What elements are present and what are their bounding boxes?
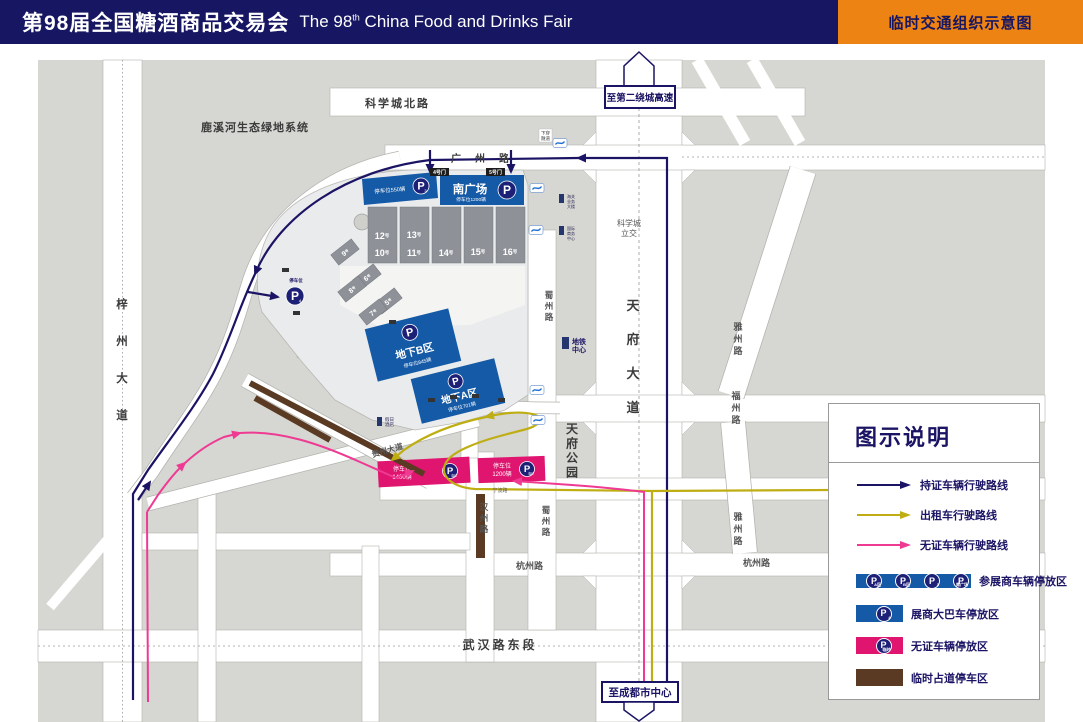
- gate-badge: [498, 398, 505, 402]
- label-yazhou-north: 雅州路: [732, 321, 743, 356]
- sign-north-label: 至第二绕城高速: [607, 92, 674, 104]
- page-title: 第98届全国糖酒商品交易会: [22, 7, 289, 37]
- svg-text:临时: 临时: [451, 474, 457, 478]
- temp2-cap2: 1200辆: [492, 470, 511, 478]
- label-interchange-2: 立交: [621, 228, 637, 238]
- intl-line3: 中心: [567, 235, 575, 241]
- legend-route-no-permit: 无证车辆行驶路线: [829, 537, 1039, 553]
- parking-south-plaza: 南广场 停车位1200辆 P: [440, 175, 524, 205]
- metro-icon: [531, 416, 545, 425]
- gate-5-label: 5号门: [489, 169, 502, 176]
- gate-badge: [472, 394, 479, 398]
- label-hanzhou: 汉州路: [479, 502, 489, 534]
- building-icon: [377, 417, 382, 426]
- legend-bus-parking: P4 展商大巴车停放区: [829, 605, 1039, 622]
- label-wuhan-east: 武汉路东段: [462, 637, 537, 652]
- label-hangzhou-east: 杭州路: [743, 557, 771, 568]
- metro-icon: [530, 184, 544, 193]
- building-icon: [559, 194, 564, 203]
- p-badge-a: PA区: [866, 573, 882, 589]
- road-sw-vertical2: [362, 546, 379, 722]
- customs-line3: 大楼: [567, 203, 575, 209]
- parking-temp-1200: 停车位 1200辆 P 临时: [478, 456, 546, 483]
- map-type-badge: 临时交通组织示意图: [838, 0, 1083, 44]
- gate-badge: [428, 398, 435, 402]
- exhibitor-parking-icon: PA区 PB区 P3 P南广场: [856, 574, 971, 588]
- legend-no-permit-parking: P临时 无证车辆停放区: [829, 637, 1039, 654]
- label-tianfu-park: 天府公园: [566, 422, 579, 480]
- legend-roadside-parking: 临时占道停车区: [829, 669, 1039, 686]
- south-plaza-label: 南广场: [453, 182, 488, 196]
- traffic-map-page: 第98届全国糖酒商品交易会 The 98th China Food and Dr…: [0, 0, 1083, 722]
- road-sw-horizontal: [142, 533, 470, 550]
- p-badge-b: PB区: [895, 573, 911, 589]
- p-badge-3: P3: [924, 573, 940, 589]
- label-fuzhou-east: 福州路: [730, 390, 741, 425]
- label-yazhou-south: 雅州路: [732, 511, 743, 546]
- hotel-line2: 酒店: [385, 421, 394, 428]
- page-title-en: The 98th China Food and Drinks Fair: [299, 12, 572, 32]
- roadside-parking-icon: [856, 669, 903, 686]
- p4-capacity: 停车位: [289, 277, 303, 284]
- legend-title: 图示说明: [829, 404, 1039, 462]
- building-icon: [559, 226, 564, 235]
- label-interchange-1: 科学城: [617, 218, 641, 228]
- temp2-cap1: 停车位: [493, 462, 511, 470]
- gate-4-label: 4号门: [433, 169, 446, 176]
- no-permit-parking-icon: P临时: [856, 637, 903, 654]
- p4-icon: P 4: [286, 287, 304, 305]
- metro-icon: [529, 226, 543, 235]
- gate-badge: [293, 311, 300, 315]
- label-guangzhou: 广州路: [451, 152, 523, 165]
- gate-badge: [450, 395, 457, 399]
- gate-badge: [282, 268, 289, 272]
- label-hangzhou-west: 杭州路: [516, 560, 544, 571]
- label-kexuecheng-north: 科学城北路: [365, 96, 430, 110]
- legend-panel: 图示说明 持证车辆行驶路线 出租车行驶路线 无证车辆行驶路线: [828, 403, 1040, 700]
- metro-center-line1: 地铁: [572, 337, 586, 346]
- tunnel-line2: 隧道: [541, 135, 550, 142]
- p-badge-temp: P临时: [876, 638, 892, 654]
- metro-icon: [530, 386, 544, 395]
- label-shuzhou-south: 蜀州路: [541, 505, 551, 537]
- svg-text:临时: 临时: [528, 472, 534, 476]
- road-sw-vertical1: [198, 492, 216, 722]
- label-shuzhou-north: 蜀州路: [544, 290, 554, 322]
- building-icon: [562, 337, 569, 349]
- svg-text:P: P: [503, 183, 511, 197]
- p3-icon: P 3: [413, 178, 429, 194]
- venue-circle-plaza: [354, 214, 370, 230]
- p-badge-south-plaza: P南广场: [953, 573, 969, 589]
- legend-route-permit: 持证车辆行驶路线: [829, 477, 1039, 493]
- gate-badge: [389, 320, 396, 324]
- legend-divider: [829, 462, 1039, 463]
- sign-south-label: 至成都市中心: [609, 686, 672, 699]
- south-plaza-p-icon: P: [498, 181, 516, 199]
- legend-exhibitor-parking: PA区 PB区 P3 P南广场 参展商车辆停放区: [829, 573, 1039, 589]
- no-permit-route-arrow-icon: [856, 540, 912, 550]
- metro-center-line2: 中心: [572, 345, 586, 354]
- south-plaza-capacity: 停车位1200辆: [456, 196, 486, 203]
- tunnel-label: 下穿 隧道: [539, 129, 552, 142]
- road-zizhou-avenue: [103, 60, 142, 722]
- permit-route-arrow-icon: [856, 480, 912, 490]
- parking-p4: 停车位 P 4: [286, 277, 304, 305]
- label-luxihe-green: 鹿溪河生态绿地系统: [201, 120, 309, 134]
- metro-icon: [553, 139, 567, 148]
- p-badge-4: P4: [876, 606, 892, 622]
- taxi-route-arrow-icon: [856, 510, 912, 520]
- temp2-p-icon: P 临时: [520, 462, 535, 477]
- header-bar: 第98届全国糖酒商品交易会 The 98th China Food and Dr…: [0, 0, 1083, 44]
- bus-parking-icon: P4: [856, 605, 903, 622]
- label-ningbo-west: 宁波路: [492, 487, 507, 494]
- legend-route-taxi: 出租车行驶路线: [829, 507, 1039, 523]
